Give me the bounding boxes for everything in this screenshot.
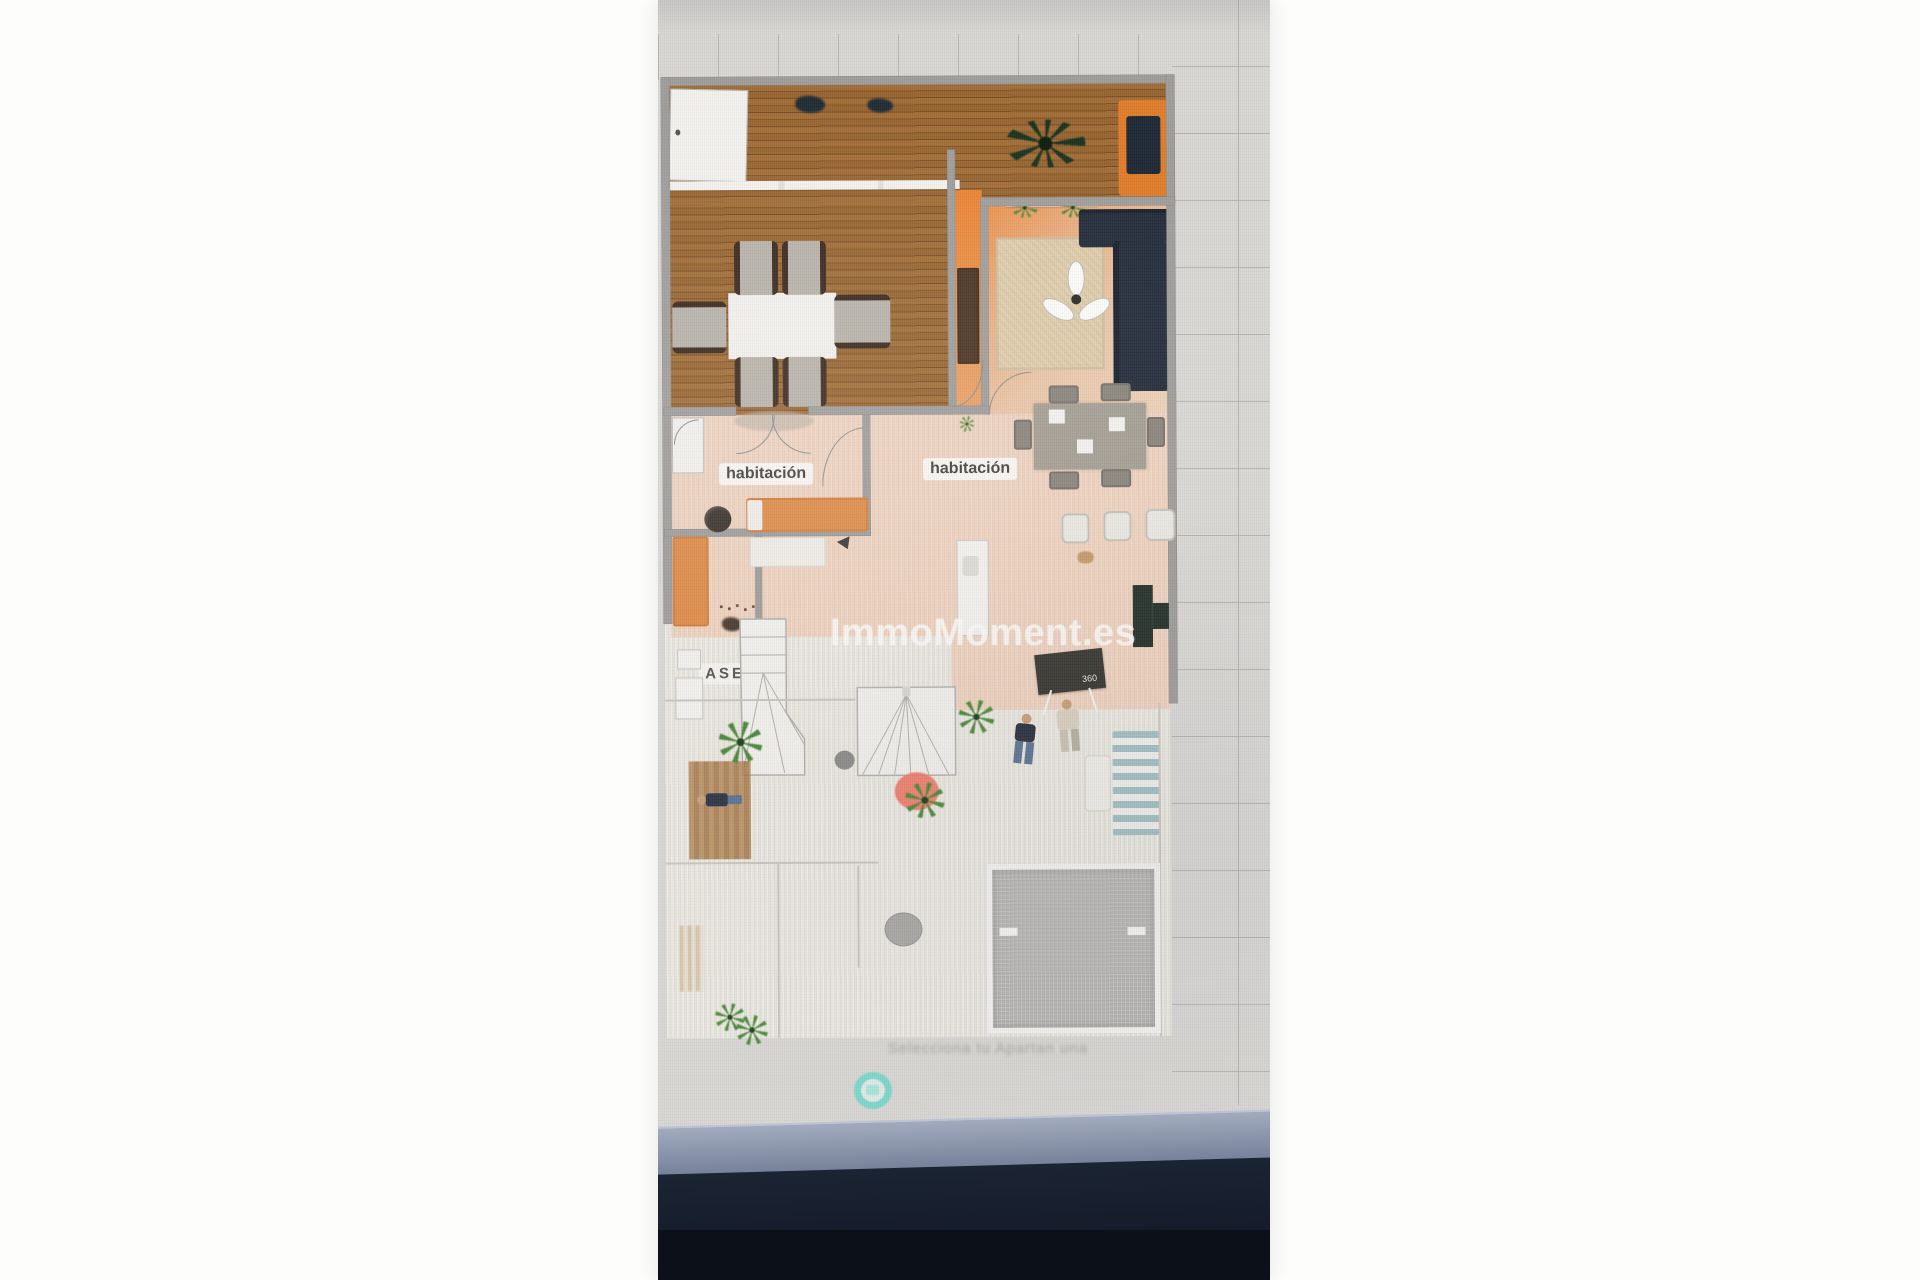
sofa-side <box>1113 241 1170 391</box>
small-items <box>1078 551 1094 563</box>
floorplanner-logo-icon <box>854 1072 892 1109</box>
dining-chair <box>672 301 726 353</box>
wall-speaker-left <box>795 96 825 113</box>
small-plant <box>960 416 974 432</box>
footer-caption: Selecciona tu Apartan una <box>826 1040 1150 1057</box>
person-standing-2 <box>1052 698 1084 756</box>
watermark-text: ImmoMoment.es <box>830 612 1136 655</box>
pool-marker <box>1128 927 1146 935</box>
bed-pillow <box>747 500 762 530</box>
dirt-specks <box>720 605 723 608</box>
room-label-text: habitación <box>726 465 806 482</box>
dining-chair <box>782 241 826 295</box>
wall-dining-bottom-b <box>809 406 989 415</box>
terrace-plant <box>736 1015 768 1045</box>
monitor-base-fill <box>658 1230 1270 1280</box>
counter-sink <box>963 556 979 576</box>
bed-horizontal <box>746 497 868 532</box>
menu-board-sign: 360 <box>1082 673 1098 685</box>
lounger-white <box>1085 755 1111 811</box>
kitchen-chair <box>1049 385 1079 403</box>
hanging-plant-icon <box>1005 119 1085 167</box>
ceiling-fan-icon <box>1038 261 1114 337</box>
dining-table <box>728 293 836 360</box>
bar-stool <box>1145 509 1175 541</box>
bedside-table <box>704 506 731 532</box>
wall-living-top <box>981 197 1175 206</box>
person-standing-1 <box>1008 712 1041 767</box>
round-stool <box>835 751 855 770</box>
table-napkin <box>1077 439 1093 453</box>
room-label-text: habitación <box>930 460 1010 477</box>
planner-canvas: habitación habitación ASEO 360 <box>658 0 1270 1280</box>
table-napkin <box>1049 409 1065 423</box>
bar-stool <box>1103 511 1131 541</box>
terrace-plant <box>718 721 762 763</box>
aseo-sink <box>677 649 701 669</box>
wall-shelf <box>668 180 960 191</box>
terrace-plant <box>905 782 945 818</box>
monitor-photo: habitación habitación ASEO 360 <box>658 0 1270 1280</box>
pool <box>986 863 1161 1034</box>
bar-stool <box>1061 513 1089 543</box>
striped-mat <box>1112 731 1159 835</box>
wall-speaker-right <box>867 98 893 112</box>
wall-dining-bottom-a <box>664 407 736 415</box>
cabinet-handle <box>675 129 680 135</box>
kitchen-chair <box>1101 383 1131 401</box>
round-table <box>884 912 922 946</box>
potted-plant <box>958 700 994 734</box>
pool-marker <box>1000 928 1018 936</box>
table-napkin <box>1109 417 1125 431</box>
bench-cushion <box>1126 116 1160 174</box>
kitchen-chair <box>1014 420 1032 450</box>
kitchen-island-arm <box>1153 603 1169 629</box>
wall-living-left <box>981 198 989 414</box>
bench <box>749 537 825 567</box>
bed-vertical <box>672 536 708 626</box>
dining-chair <box>734 241 778 295</box>
dining-chair <box>735 357 779 407</box>
kitchen-chair <box>1049 471 1079 489</box>
kitchen-chair <box>1101 469 1131 487</box>
tan-streaks <box>679 925 703 991</box>
person-lying <box>697 789 743 811</box>
hall-runner-rug <box>957 268 980 364</box>
room-label-habitacion-2: habitación <box>923 458 1017 480</box>
dining-chair <box>783 357 827 407</box>
kitchen-chair <box>1147 417 1165 447</box>
staircase-terrace <box>856 686 956 777</box>
room-label-habitacion-1: habitación <box>719 463 813 485</box>
wardrobe-cabinet <box>668 89 748 183</box>
dining-chair <box>834 294 890 348</box>
